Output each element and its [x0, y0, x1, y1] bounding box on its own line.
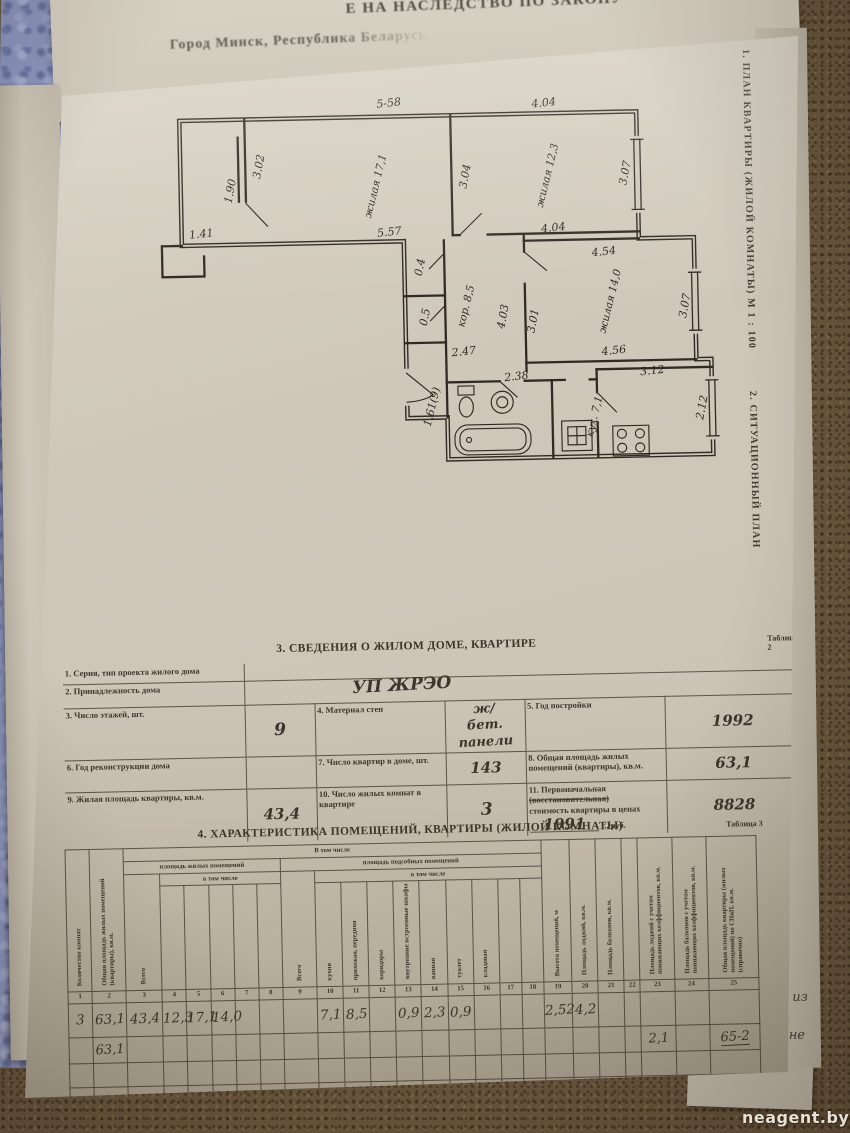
t3-cell: [523, 1027, 546, 1053]
t3-cell: [371, 1057, 398, 1082]
apartment-floor-plan: 5-58 4.04 3.02 1.90 жилая 17,1 3.04 жила…: [139, 79, 748, 521]
t3-header-text: коридоры: [378, 950, 386, 980]
t3-header-total-area: Общая площадь жилых помещений (квартиры)…: [89, 849, 126, 991]
t3-header-text: Общая площадь квартиры (жилых помещений)…: [720, 852, 745, 972]
t3-colnum: 7: [235, 987, 259, 1000]
t3-cell: [475, 1054, 502, 1079]
t3-colnum: 25: [708, 977, 759, 990]
handwritten-value: ж/бет. панели: [456, 700, 515, 752]
t3-cell: 2,52: [544, 993, 573, 1028]
windows: [631, 138, 719, 438]
t3-cell: [574, 1076, 601, 1101]
t3-header-text: Площадь балконов, кв.м.: [606, 899, 615, 975]
t3-header-hall: прихожая, передняя: [341, 882, 369, 986]
handwritten-value: 2,52: [545, 1001, 576, 1019]
t3-cell: [236, 1059, 261, 1083]
t3-colnum: 19: [544, 981, 572, 994]
t2-label-part: стоимость квартиры в ценах: [529, 803, 640, 815]
t3-header-kitchen: кухня: [315, 882, 343, 986]
technical-passport-page: 1. ПЛАН КВАРТИРЫ (ЖИЛОЙ КОМНАТЫ) М 1 : 1…: [20, 36, 798, 1100]
t3-cell: [283, 998, 318, 1033]
t3-cell: [474, 994, 501, 1029]
t3-cell: [370, 1031, 397, 1058]
t3-cell: [94, 1062, 129, 1087]
t3-cell: [284, 1058, 319, 1083]
dim-label: 3.04: [456, 163, 473, 190]
t3-header-text: Количество комнат: [75, 928, 84, 986]
t3-header-blank: [208, 885, 234, 989]
t3-cell: [573, 1052, 600, 1077]
t3-colnum: 14: [421, 984, 447, 997]
t3-header-text: кладовая: [482, 950, 490, 978]
t3-cell: 43,4: [126, 1001, 163, 1036]
t3-cell: 3: [68, 1003, 93, 1037]
room-label-living3: жилая 14,0: [597, 268, 624, 335]
t2-value: 1992: [664, 693, 801, 748]
t3-header-text: Площадь лоджий, кв.м.: [580, 905, 589, 976]
t3-header-toilet: туалет: [445, 880, 473, 984]
t3-cell: [600, 1052, 627, 1077]
t3-cell: 7,1: [317, 998, 344, 1033]
sink: [491, 391, 513, 413]
page-content: 1. ПЛАН КВАРТИРЫ (ЖИЛОЙ КОМНАТЫ) М 1 : 1…: [10, 28, 810, 1108]
t3-header-text: туалет: [456, 959, 464, 979]
handwritten-value: 0,9: [450, 1004, 472, 1021]
handwritten-value: 7,1: [319, 1006, 341, 1023]
t3-header-storage: кладовая: [471, 879, 499, 983]
t3-cell: [423, 1080, 450, 1105]
certificate-title-fragment: Е НА НАСЛЕДСТВО ПО ЗАКОНУ: [345, 0, 624, 18]
t3-cell: [600, 1076, 627, 1101]
t3-cell: [624, 991, 641, 1025]
t3-cell: [546, 1077, 575, 1102]
dim-label: 2.38: [503, 369, 530, 385]
t3-cell: [476, 1078, 503, 1103]
t3-colnum: 21: [598, 980, 624, 993]
dim-label: 2.47: [450, 344, 477, 360]
t3-colnum: 9: [283, 986, 317, 999]
t3-cell: 63,1: [93, 1036, 128, 1063]
t3-colnum: 18: [522, 982, 544, 994]
t3-header-living-total: Всего: [124, 874, 163, 990]
t3-cell: [285, 1082, 320, 1107]
t3-colnum: 5: [186, 988, 210, 1001]
t3-cell: [188, 1084, 213, 1108]
handwritten-value: 143: [470, 758, 502, 777]
t3-cell: [211, 1034, 236, 1060]
t3-cell: [260, 1059, 285, 1083]
t3-cell: [545, 1027, 574, 1054]
t3-cell: [676, 1050, 711, 1075]
handwritten-value: 1992: [712, 711, 754, 730]
t3-colnum: 24: [674, 978, 708, 991]
dim-label: 0.5: [417, 307, 433, 327]
t3-cell: [397, 1080, 424, 1105]
t3-cell: [319, 1082, 346, 1107]
t3-cell: [397, 1056, 424, 1081]
watermark: neagent.by: [742, 1108, 849, 1127]
dim-label: 4.03: [494, 303, 512, 330]
t3-cell: [345, 1057, 372, 1082]
t3-cell: [500, 994, 523, 1028]
t3-cell: [675, 1024, 710, 1051]
toilet-tank: [458, 386, 474, 395]
t3-cell: [642, 1051, 677, 1076]
plan-dimension-labels: 5-58 4.04 3.02 1.90 жилая 17,1 3.04 жила…: [186, 89, 712, 447]
t3-cell: [128, 1061, 165, 1086]
dim-label: 3.07: [616, 160, 633, 187]
t3-header-loggia: Площадь лоджий, кв.м.: [569, 839, 598, 981]
t2-label: 4. Материал стен: [314, 701, 445, 755]
t3-cell: [69, 1063, 94, 1087]
t3-cell: 8,5: [343, 997, 370, 1032]
handwritten-value: 0,9: [398, 1005, 420, 1022]
t3-cell: [675, 990, 710, 1025]
dim-label: 4.54: [590, 244, 617, 260]
t3-cell: [626, 1051, 643, 1075]
t2-value: 63,1: [665, 745, 802, 780]
t2-label: 5. Год постройки: [524, 696, 665, 751]
t3-cell: [128, 1085, 165, 1110]
dim-label: 3.12: [639, 363, 665, 379]
t3-colnum: 10: [317, 986, 343, 999]
t3-colnum: 11: [343, 985, 369, 998]
t3-cell: [474, 1028, 501, 1055]
room-label-living2: жилая 12,3: [534, 142, 561, 209]
t3-cell: [573, 1026, 600, 1053]
handwritten-value: 2,1: [648, 1031, 669, 1047]
t3-cell: [94, 1086, 129, 1111]
dim-label: 3.01: [524, 308, 541, 335]
t3-header-rooms-count: Количество комнат: [65, 849, 92, 991]
t3-header-text: ванная: [430, 957, 438, 978]
t3-cell: [344, 1031, 371, 1058]
t3-header-bathroom: ванная: [419, 880, 447, 984]
t3-cell: [449, 1055, 476, 1080]
t3-header-loggia-coef: Площадь лоджий с учетом понижающих коэфф…: [637, 837, 674, 979]
t3-cell: 14,0: [211, 1000, 236, 1034]
side-caption-situation: 2. СИТУАЦИОННЫЙ ПЛАН: [747, 391, 761, 549]
t3-cell: [345, 1081, 372, 1106]
t3-cell: 0,9: [395, 996, 422, 1031]
t3-cell: 0,9: [448, 995, 475, 1030]
dim-label: 1.41: [188, 226, 214, 242]
t3-colnum: 2: [92, 990, 126, 1003]
t3-colnum: 1: [68, 991, 92, 1004]
t3-cell: [187, 1034, 212, 1060]
t3-colnum: 6: [210, 988, 234, 1001]
text-fragment: из: [792, 990, 808, 1005]
t3-cell: [237, 1083, 262, 1107]
t3-cell: [261, 1083, 286, 1107]
t3-colnum: 23: [640, 979, 674, 992]
dim-label: 1.90: [222, 178, 239, 205]
t3-header-blank: [520, 878, 544, 982]
dim-label: 1.61(9): [421, 386, 443, 428]
t3-header-blank: [184, 885, 210, 989]
t3-header-builtin-closets: внутренние встроенные шкафы: [393, 881, 421, 985]
t3-cell: [501, 1054, 524, 1078]
wall-openings: [402, 138, 713, 442]
t3-header-balcony-coef: Площадь балконов с учетом понижающих коэ…: [671, 837, 708, 979]
t3-colnum: 17: [500, 982, 522, 994]
t3-cell: [502, 1078, 525, 1102]
t3-colnum: 20: [572, 980, 598, 993]
rooms-characteristics-table: Количество комнат Общая площадь жилых по…: [64, 835, 761, 1112]
t2-value: 143: [446, 751, 527, 785]
certificate-city-line: Город Минск, Республика Беларусь, Ш: [170, 27, 453, 54]
dim-label: 5.57: [376, 224, 402, 240]
room-label-corridor: кор. 8,5: [455, 284, 477, 329]
t3-colnum: 12: [369, 985, 395, 998]
t3-cell: [260, 1033, 285, 1059]
handwritten-value: 3: [76, 1012, 85, 1028]
dim-label: 4.04: [539, 220, 566, 236]
t3-header-aux-total: Всего: [280, 871, 317, 987]
handwritten-value: 65-2: [720, 1028, 750, 1046]
t3-header-balcony: Площадь балконов, кв.м.: [595, 838, 624, 980]
dim-label: 4.56: [600, 343, 627, 359]
toilet-bowl: [459, 397, 473, 417]
t3-header-text: кухня: [326, 963, 334, 981]
t3-cell: [212, 1060, 237, 1084]
t3-colnum: 4: [162, 989, 186, 1002]
t3-cell: 2,3: [422, 996, 449, 1031]
t3-cell: [396, 1030, 423, 1057]
t3-header-blank: [257, 883, 283, 987]
t3-colnum: 15: [447, 983, 473, 996]
t2-value: ж/бет. панели: [444, 699, 525, 752]
handwritten-value: 14,0: [211, 1008, 242, 1026]
t3-header-text: Общая площадь жилых помещений (квартиры)…: [99, 865, 117, 985]
t3-header-height: Высота помещений, м: [541, 839, 572, 981]
t3-cell: [69, 1037, 94, 1063]
t3-cell: [127, 1035, 164, 1062]
t3-cell: 65-2: [709, 1023, 760, 1050]
t3-cell: [522, 994, 545, 1028]
t3-cell: [640, 991, 675, 1026]
t3-colnum: 3: [126, 989, 162, 1002]
handwritten-value: 63,1: [715, 753, 752, 772]
t3-cell: 4,2: [572, 992, 599, 1027]
handwritten-value: 2,3: [424, 1004, 446, 1021]
t3-cell: [70, 1087, 95, 1111]
t3-cell: [259, 999, 284, 1033]
t3-header-text: Высота помещений, м: [553, 910, 562, 976]
stove: [613, 425, 650, 456]
t3-header-text: Площадь лоджий с учетом понижающих коэфф…: [647, 854, 665, 974]
t3-header-blank: [232, 884, 258, 988]
t3-header-text: Площадь балконов с учетом понижающих коэ…: [681, 853, 699, 973]
t3-cell: [598, 992, 625, 1027]
dim-label: 2.12: [693, 394, 711, 421]
t2-value: 9: [245, 703, 316, 756]
t3-cell: [501, 1028, 524, 1054]
handwritten-value: 8828: [713, 795, 755, 814]
t3-cell: [422, 1030, 449, 1057]
t3-cell: [236, 1033, 261, 1059]
t3-cell: [709, 989, 760, 1024]
t3-cell: [284, 1032, 319, 1059]
t3-cell: [318, 1058, 345, 1083]
t3-cell: [626, 1075, 643, 1099]
t3-header-corridors: коридоры: [367, 881, 395, 985]
dim-label: 3.07: [676, 292, 693, 319]
t3-cell: 12,3: [163, 1001, 188, 1035]
handwritten-value: 9: [274, 719, 286, 739]
handwritten-value: 8,5: [345, 1006, 367, 1023]
t2-value: [246, 755, 317, 788]
t2-label: 3. Число этажей, шт.: [63, 705, 246, 761]
t3-header-text: прихожая, передняя: [351, 920, 360, 980]
t3-header-blank: [497, 878, 521, 982]
t3-header-snip: Общая площадь квартиры (жилых помещений)…: [706, 836, 759, 979]
t3-colnum: 16: [474, 982, 500, 995]
t3-cell: [188, 1060, 213, 1084]
t3-cell: [371, 1081, 398, 1106]
room-label-living1: жилая 17,1: [362, 153, 389, 219]
t2-label: 7. Число квартир в доме, шт.: [316, 753, 447, 788]
t3-cell: [423, 1056, 450, 1081]
t3-cell: [523, 1053, 546, 1077]
dim-label: 5-58: [376, 95, 402, 111]
t3-cell: [164, 1061, 189, 1085]
t3-header-text: Всего: [140, 968, 148, 985]
handwritten-value: 3: [481, 800, 493, 820]
t3-cell: [213, 1084, 238, 1108]
t3-cell: [710, 1049, 761, 1074]
handwritten-value: 63,1: [94, 1011, 125, 1029]
dim-label: 4.04: [530, 95, 557, 111]
handwritten-value: 43,4: [263, 805, 300, 824]
t3-cell: [545, 1053, 574, 1078]
t3-colnum: 13: [395, 984, 421, 997]
t3-cell: [448, 1029, 475, 1056]
text-fragment: не: [789, 1028, 805, 1043]
t2-label: 8. Общая площадь жилых помещений (кварти…: [526, 748, 667, 783]
t3-cell: [369, 997, 396, 1032]
t3-cell: 2,1: [641, 1025, 676, 1052]
t3-cell: 63,1: [92, 1002, 127, 1037]
t3-cell: [163, 1035, 188, 1061]
dim-label: 0.4: [412, 257, 428, 277]
t3-cell: [164, 1085, 189, 1109]
room-label-kitchen: кух. 7,1: [584, 395, 606, 438]
t3-cell: [318, 1032, 345, 1059]
dim-label: 3.02: [250, 153, 267, 180]
handwritten-value: 63,1: [95, 1042, 125, 1059]
t3-header-blank: [160, 886, 186, 990]
t3-cell: [449, 1079, 476, 1104]
table3-tag: Таблица 3: [726, 819, 763, 829]
t3-cell: [599, 1026, 626, 1053]
t3-cell: 17,1: [187, 1000, 212, 1034]
t3-colnum: 8: [259, 987, 283, 1000]
photo-of-technical-passport: { "scene": { "watermark": "neagent.by" }…: [0, 0, 850, 1133]
t3-colnum: 22: [624, 979, 640, 991]
t3-cell: [625, 1025, 642, 1051]
stairwell-landing: [162, 245, 205, 277]
handwritten-value: 43,4: [129, 1010, 160, 1028]
t3-cell: [642, 1075, 677, 1100]
t3-header-text: Всего: [296, 965, 304, 982]
handwritten-value: 4,2: [574, 1001, 596, 1018]
t3-header-text: внутренние встроенные шкафы: [402, 883, 412, 979]
t2-label: 6. Год реконструкции дома: [64, 757, 247, 793]
t3-cell: [524, 1077, 547, 1101]
